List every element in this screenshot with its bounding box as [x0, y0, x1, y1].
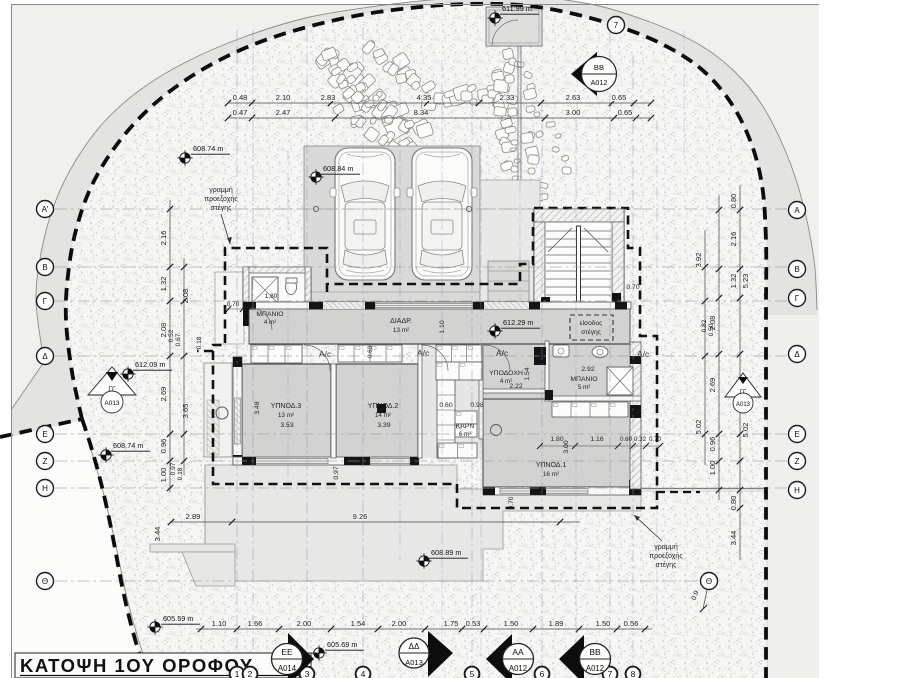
svg-text:0.82: 0.82	[701, 319, 708, 332]
svg-text:Δ: Δ	[794, 350, 800, 359]
svg-text:2.22: 2.22	[509, 383, 522, 390]
svg-text:6 m²: 6 m²	[459, 431, 471, 438]
svg-text:Γ: Γ	[43, 297, 48, 306]
svg-text:γραμμή: γραμμή	[209, 187, 233, 194]
svg-text:A014: A014	[278, 664, 297, 673]
svg-text:0.96: 0.96	[159, 439, 168, 454]
svg-text:A012: A012	[586, 664, 604, 673]
svg-text:0.18: 0.18	[177, 467, 184, 480]
svg-text:1.00: 1.00	[159, 468, 168, 483]
svg-text:0.70: 0.70	[508, 496, 515, 509]
svg-text:3: 3	[305, 669, 310, 678]
svg-text:5: 5	[470, 669, 475, 678]
svg-text:προεξοχής: προεξοχής	[204, 196, 238, 203]
svg-text:1.50: 1.50	[596, 619, 611, 628]
svg-text:Θ: Θ	[706, 577, 712, 586]
svg-text:A: A	[794, 206, 800, 215]
svg-text:608.74 m: 608.74 m	[113, 441, 143, 450]
svg-text:A013: A013	[105, 400, 120, 407]
svg-text:AA: AA	[512, 647, 524, 657]
svg-text:A/c: A/c	[417, 348, 430, 358]
svg-text:ΥΠΟΔΟΧΗ: ΥΠΟΔΟΧΗ	[489, 370, 523, 377]
svg-text:2.10: 2.10	[276, 93, 291, 102]
svg-text:A013: A013	[736, 402, 751, 408]
svg-text:5.02: 5.02	[741, 423, 750, 438]
svg-text:7: 7	[614, 21, 619, 30]
svg-text:2: 2	[248, 669, 253, 678]
svg-text:0.50: 0.50	[708, 323, 715, 336]
svg-text:2.69: 2.69	[159, 387, 168, 402]
svg-text:4: 4	[361, 669, 366, 678]
svg-text:0.96: 0.96	[708, 437, 717, 452]
svg-text:2.33: 2.33	[500, 93, 515, 102]
svg-text:13 m²: 13 m²	[393, 327, 409, 334]
svg-text:2.08: 2.08	[159, 323, 168, 338]
svg-text:1.10: 1.10	[439, 320, 446, 333]
svg-text:1.80: 1.80	[550, 436, 563, 443]
svg-text:3.48: 3.48	[254, 401, 261, 414]
svg-text:1.89: 1.89	[549, 619, 564, 628]
svg-text:1: 1	[235, 669, 240, 678]
svg-text:5.23: 5.23	[741, 274, 750, 289]
svg-text:1.00: 1.00	[708, 461, 717, 476]
svg-text:0.97: 0.97	[333, 466, 340, 479]
svg-text:1.50: 1.50	[504, 619, 519, 628]
svg-text:προεξοχής: προεξοχής	[649, 553, 683, 560]
svg-text:B: B	[794, 265, 799, 274]
svg-text:0.80: 0.80	[729, 496, 738, 511]
svg-text:2.92: 2.92	[581, 366, 594, 373]
svg-text:3.00: 3.00	[566, 108, 581, 117]
svg-text:0.65: 0.65	[618, 108, 633, 117]
svg-text:BB: BB	[594, 63, 604, 72]
svg-text:0.70: 0.70	[649, 436, 662, 443]
svg-text:5.02: 5.02	[694, 420, 703, 435]
svg-text:1.32: 1.32	[159, 277, 168, 292]
svg-text:0.70: 0.70	[227, 301, 240, 308]
svg-text:612.29 m: 612.29 m	[503, 318, 533, 327]
svg-text:Θ: Θ	[42, 577, 48, 586]
svg-text:EE: EE	[281, 647, 293, 657]
svg-text:2.08: 2.08	[181, 289, 190, 304]
svg-text:στέγης: στέγης	[581, 328, 601, 336]
svg-text:1.10: 1.10	[212, 619, 227, 628]
svg-text:H: H	[42, 484, 48, 493]
svg-text:ΚΑΡΝ: ΚΑΡΝ	[456, 423, 475, 430]
svg-text:2.00: 2.00	[392, 619, 407, 628]
svg-text:ΜΠΑΝΙΟ: ΜΠΑΝΙΟ	[256, 311, 283, 318]
svg-text:BB: BB	[589, 647, 601, 657]
svg-text:είσοδος: είσοδος	[580, 319, 603, 327]
svg-text:γραμμή: γραμμή	[654, 544, 678, 551]
svg-text:A012: A012	[591, 78, 608, 87]
svg-text:ΥΠΝΟΔ.1: ΥΠΝΟΔ.1	[536, 462, 567, 469]
svg-text:0.53: 0.53	[466, 619, 481, 628]
svg-text:Z: Z	[43, 457, 48, 466]
svg-text:608.74 m: 608.74 m	[193, 144, 223, 153]
svg-text:0.65: 0.65	[612, 93, 627, 102]
svg-text:1.54: 1.54	[524, 367, 531, 380]
svg-text:0.47: 0.47	[233, 108, 248, 117]
svg-text:2.16: 2.16	[159, 231, 168, 246]
svg-text:2.63: 2.63	[566, 93, 581, 102]
svg-text:A': A'	[42, 205, 49, 214]
svg-text:6: 6	[540, 669, 545, 678]
svg-text:2.00: 2.00	[297, 619, 312, 628]
svg-text:στέγης: στέγης	[656, 561, 678, 569]
svg-text:5 m²: 5 m²	[578, 384, 590, 391]
svg-text:605.69 m: 605.69 m	[327, 640, 357, 649]
svg-text:611.99 m: 611.99 m	[502, 4, 532, 13]
svg-text:0.56: 0.56	[624, 619, 639, 628]
svg-text:0.67: 0.67	[175, 333, 182, 346]
svg-text:3.39: 3.39	[377, 422, 390, 429]
svg-text:0.18: 0.18	[196, 336, 203, 349]
svg-text:ΔΔ: ΔΔ	[409, 642, 420, 651]
svg-text:0.48: 0.48	[233, 93, 248, 102]
svg-text:0.60: 0.60	[620, 436, 633, 443]
svg-text:A/c: A/c	[319, 349, 332, 359]
svg-text:A/c: A/c	[637, 349, 650, 359]
svg-text:Δ: Δ	[42, 352, 48, 361]
svg-text:612.09 m: 612.09 m	[135, 360, 165, 369]
svg-text:1.32: 1.32	[729, 274, 738, 289]
svg-text:4.35: 4.35	[417, 93, 432, 102]
svg-text:3.44: 3.44	[153, 527, 162, 542]
svg-text:A012: A012	[509, 664, 527, 673]
svg-text:3.92: 3.92	[694, 253, 703, 268]
svg-text:0.80: 0.80	[729, 194, 738, 209]
svg-text:8.34: 8.34	[414, 108, 429, 117]
svg-text:0.60: 0.60	[439, 402, 452, 409]
svg-text:7: 7	[608, 669, 613, 678]
svg-text:H: H	[794, 486, 800, 495]
svg-text:3.44: 3.44	[729, 531, 738, 546]
svg-text:1.54: 1.54	[351, 619, 366, 628]
svg-text:ΔΙΑΔΡ.: ΔΙΑΔΡ.	[390, 318, 412, 325]
svg-text:3.65: 3.65	[181, 404, 190, 419]
svg-text:0.52: 0.52	[168, 329, 175, 342]
svg-text:0.97: 0.97	[170, 462, 177, 475]
svg-text:14 m²: 14 m²	[375, 412, 391, 419]
svg-text:1.16: 1.16	[590, 436, 603, 443]
svg-text:E: E	[42, 430, 47, 439]
svg-text:608.84 m: 608.84 m	[323, 164, 353, 173]
svg-text:16 m²: 16 m²	[543, 471, 559, 478]
svg-text:9.26: 9.26	[353, 512, 368, 521]
svg-text:B: B	[42, 263, 47, 272]
svg-text:8: 8	[631, 669, 636, 678]
svg-text:Z: Z	[795, 457, 800, 466]
svg-text:0.70: 0.70	[626, 284, 639, 291]
svg-text:Γ: Γ	[795, 294, 800, 303]
svg-text:2.47: 2.47	[276, 108, 291, 117]
svg-text:3.00: 3.00	[563, 440, 570, 453]
svg-text:E: E	[794, 430, 799, 439]
svg-text:0.32: 0.32	[634, 436, 647, 443]
svg-text:1.75: 1.75	[444, 619, 459, 628]
svg-text:ΥΠΝΟΔ.3: ΥΠΝΟΔ.3	[271, 403, 302, 410]
svg-text:στέγης: στέγης	[211, 204, 233, 212]
svg-text:608.89 m: 608.89 m	[431, 548, 461, 557]
svg-text:605.59 m: 605.59 m	[163, 614, 193, 623]
svg-text:A013: A013	[405, 658, 423, 667]
svg-text:0.98: 0.98	[470, 402, 483, 409]
svg-text:3.53: 3.53	[280, 422, 293, 429]
svg-text:1.66: 1.66	[248, 619, 263, 628]
svg-text:2.83: 2.83	[321, 93, 336, 102]
svg-text:13 m²: 13 m²	[278, 412, 294, 419]
svg-text:2.89: 2.89	[186, 512, 201, 521]
svg-text:2.69: 2.69	[708, 378, 717, 393]
svg-text:2.16: 2.16	[729, 232, 738, 247]
svg-text:ΚΑΤΟΨΗ 1ΟΥ ΟΡΟΦΟΥ: ΚΑΤΟΨΗ 1ΟΥ ΟΡΟΦΟΥ	[20, 655, 254, 676]
svg-text:ΜΠΑΝΙΟ: ΜΠΑΝΙΟ	[570, 376, 597, 383]
svg-text:1.80: 1.80	[265, 293, 278, 300]
